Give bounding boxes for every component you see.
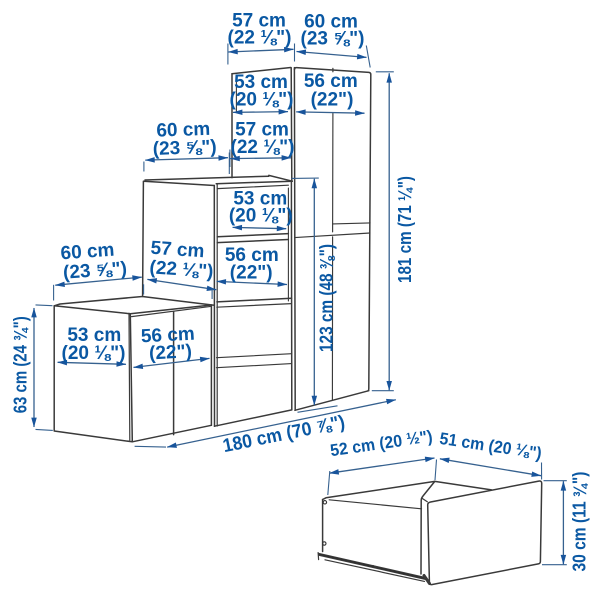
svg-text:51 cm (20 ⅛"): 51 cm (20 ⅛") <box>438 429 543 463</box>
svg-text:181 cm (71 ¼"): 181 cm (71 ¼") <box>394 176 415 283</box>
svg-text:123 cm (48 ⅜"): 123 cm (48 ⅜") <box>316 244 337 352</box>
svg-text:(20 ⅛"): (20 ⅛") <box>230 90 294 111</box>
svg-text:(23 ⅝"): (23 ⅝") <box>301 29 365 50</box>
svg-text:180 cm (70 ⅞"): 180 cm (70 ⅞") <box>221 412 347 457</box>
svg-text:(22 ⅛"): (22 ⅛") <box>231 137 295 158</box>
svg-text:30 cm (11 ¾"): 30 cm (11 ¾") <box>569 472 590 572</box>
svg-text:(22"): (22") <box>230 263 273 284</box>
svg-text:(22"): (22") <box>311 90 354 111</box>
svg-text:(23 ⅝"): (23 ⅝") <box>62 258 127 283</box>
svg-text:63 cm (24 ¾"): 63 cm (24 ¾") <box>9 316 30 413</box>
svg-text:(23 ⅝"): (23 ⅝") <box>152 137 217 160</box>
svg-text:(22 ⅛"): (22 ⅛") <box>228 28 292 49</box>
svg-text:(22 ⅛"): (22 ⅛") <box>149 257 214 282</box>
svg-text:(20 ⅛"): (20 ⅛") <box>229 206 293 227</box>
svg-text:(20 ⅛"): (20 ⅛") <box>62 343 126 364</box>
svg-text:(22"): (22") <box>149 341 193 364</box>
